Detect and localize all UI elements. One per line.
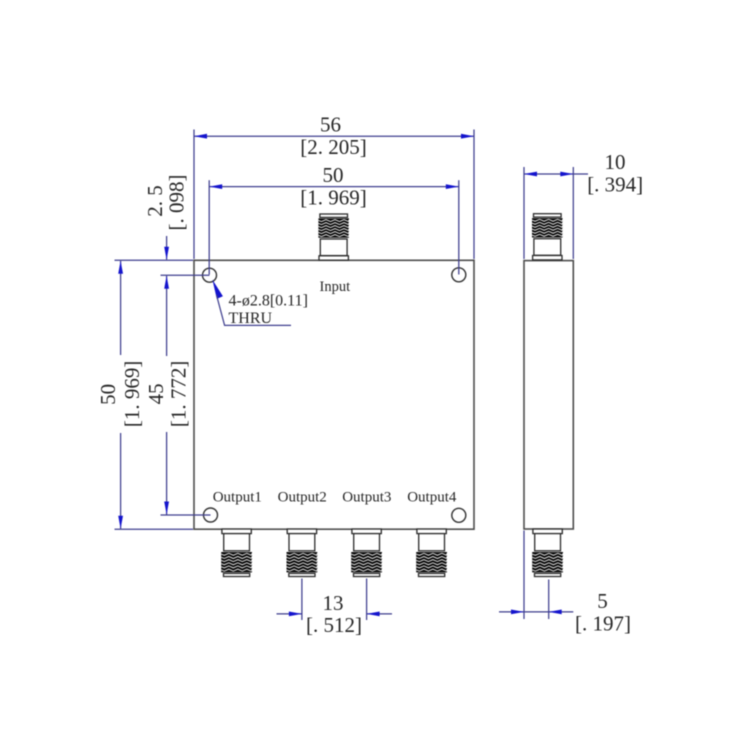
svg-text:Output2: Output2 (278, 489, 327, 505)
svg-text:[2. 205]: [2. 205] (300, 135, 367, 159)
svg-text:THRU: THRU (229, 310, 273, 327)
svg-text:50: 50 (96, 384, 120, 405)
svg-text:[1. 772]: [1. 772] (167, 361, 191, 428)
svg-text:[. 197]: [. 197] (575, 611, 631, 635)
svg-text:13: 13 (323, 591, 344, 615)
svg-text:10: 10 (605, 150, 626, 174)
svg-text:Output1: Output1 (213, 489, 262, 505)
svg-text:2. 5: 2. 5 (143, 185, 167, 217)
svg-text:[1. 969]: [1. 969] (120, 361, 144, 428)
svg-text:Input: Input (319, 279, 350, 295)
svg-text:56: 56 (320, 113, 341, 137)
svg-text:[. 512]: [. 512] (306, 613, 362, 637)
svg-text:[1. 969]: [1. 969] (300, 185, 367, 209)
svg-text:45: 45 (144, 383, 168, 404)
svg-text:4-ø2.8[0.11]: 4-ø2.8[0.11] (229, 293, 308, 310)
svg-text:Output3: Output3 (342, 489, 391, 505)
svg-text:[. 098]: [. 098] (165, 175, 189, 231)
svg-text:Output4: Output4 (407, 489, 457, 505)
svg-text:50: 50 (323, 163, 344, 187)
svg-text:[. 394]: [. 394] (587, 172, 643, 196)
svg-text:5: 5 (597, 589, 608, 613)
